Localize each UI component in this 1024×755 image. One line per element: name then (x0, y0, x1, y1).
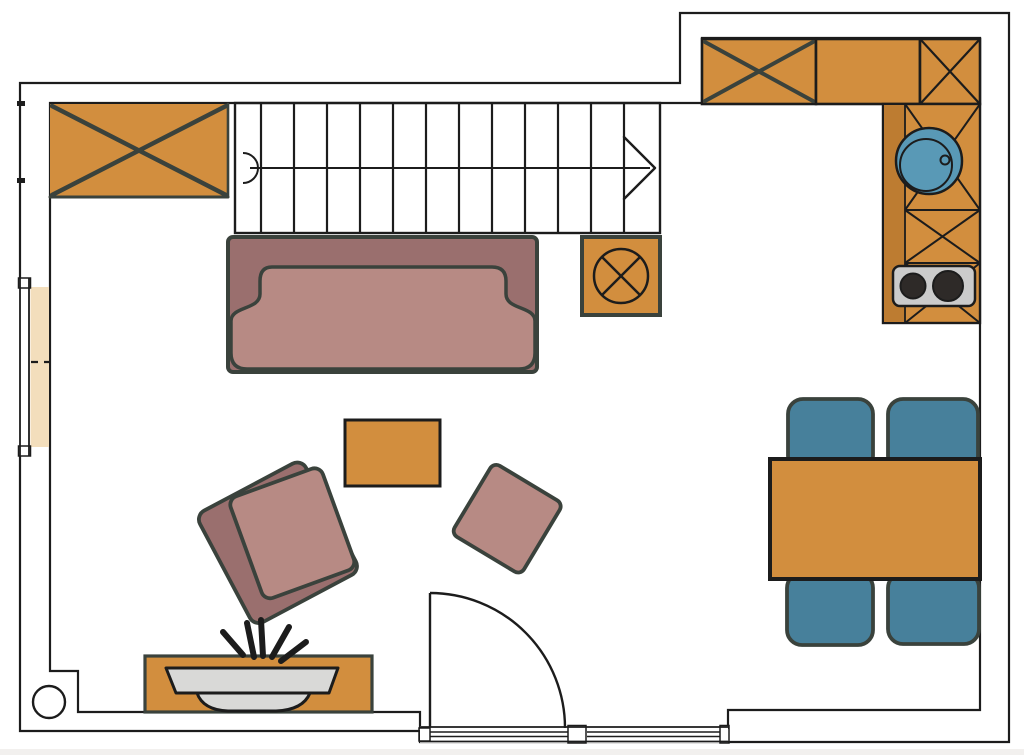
dining-chair-bottom-left (787, 573, 873, 645)
floor-plan-canvas (0, 0, 1024, 755)
sideboard (145, 620, 372, 712)
sofa-seat (231, 267, 535, 369)
decor-bowl (197, 693, 310, 711)
stove-burner-right (933, 271, 963, 301)
glazing-band (420, 726, 728, 743)
page-edge-strip (0, 749, 1024, 755)
entry-door (430, 593, 565, 728)
staircase (235, 103, 660, 233)
decor-plate (166, 668, 338, 693)
stove-burner-left (901, 274, 926, 299)
armchair-right (451, 462, 563, 575)
wall-tick-1 (17, 101, 25, 106)
dining-area (770, 399, 980, 645)
window-sill (31, 287, 50, 447)
living-area (195, 237, 563, 627)
sink-drain-knob (941, 156, 950, 165)
kitchen (702, 39, 980, 323)
left-window (19, 278, 50, 456)
bottom-glazed-opening (419, 726, 729, 744)
floor-plan-svg (0, 0, 1024, 755)
dining-table (770, 459, 980, 579)
door-swing-arc (430, 593, 565, 728)
wall-tick-2 (17, 178, 25, 183)
dining-chair-bottom-right (888, 573, 979, 644)
round-column (33, 686, 65, 718)
coffee-table (345, 420, 440, 486)
armchair-right-cushion (451, 462, 563, 575)
wardrobe-top-left (50, 104, 228, 197)
upper-cabinet-plain (816, 39, 920, 104)
side-table-crossed (582, 237, 660, 315)
